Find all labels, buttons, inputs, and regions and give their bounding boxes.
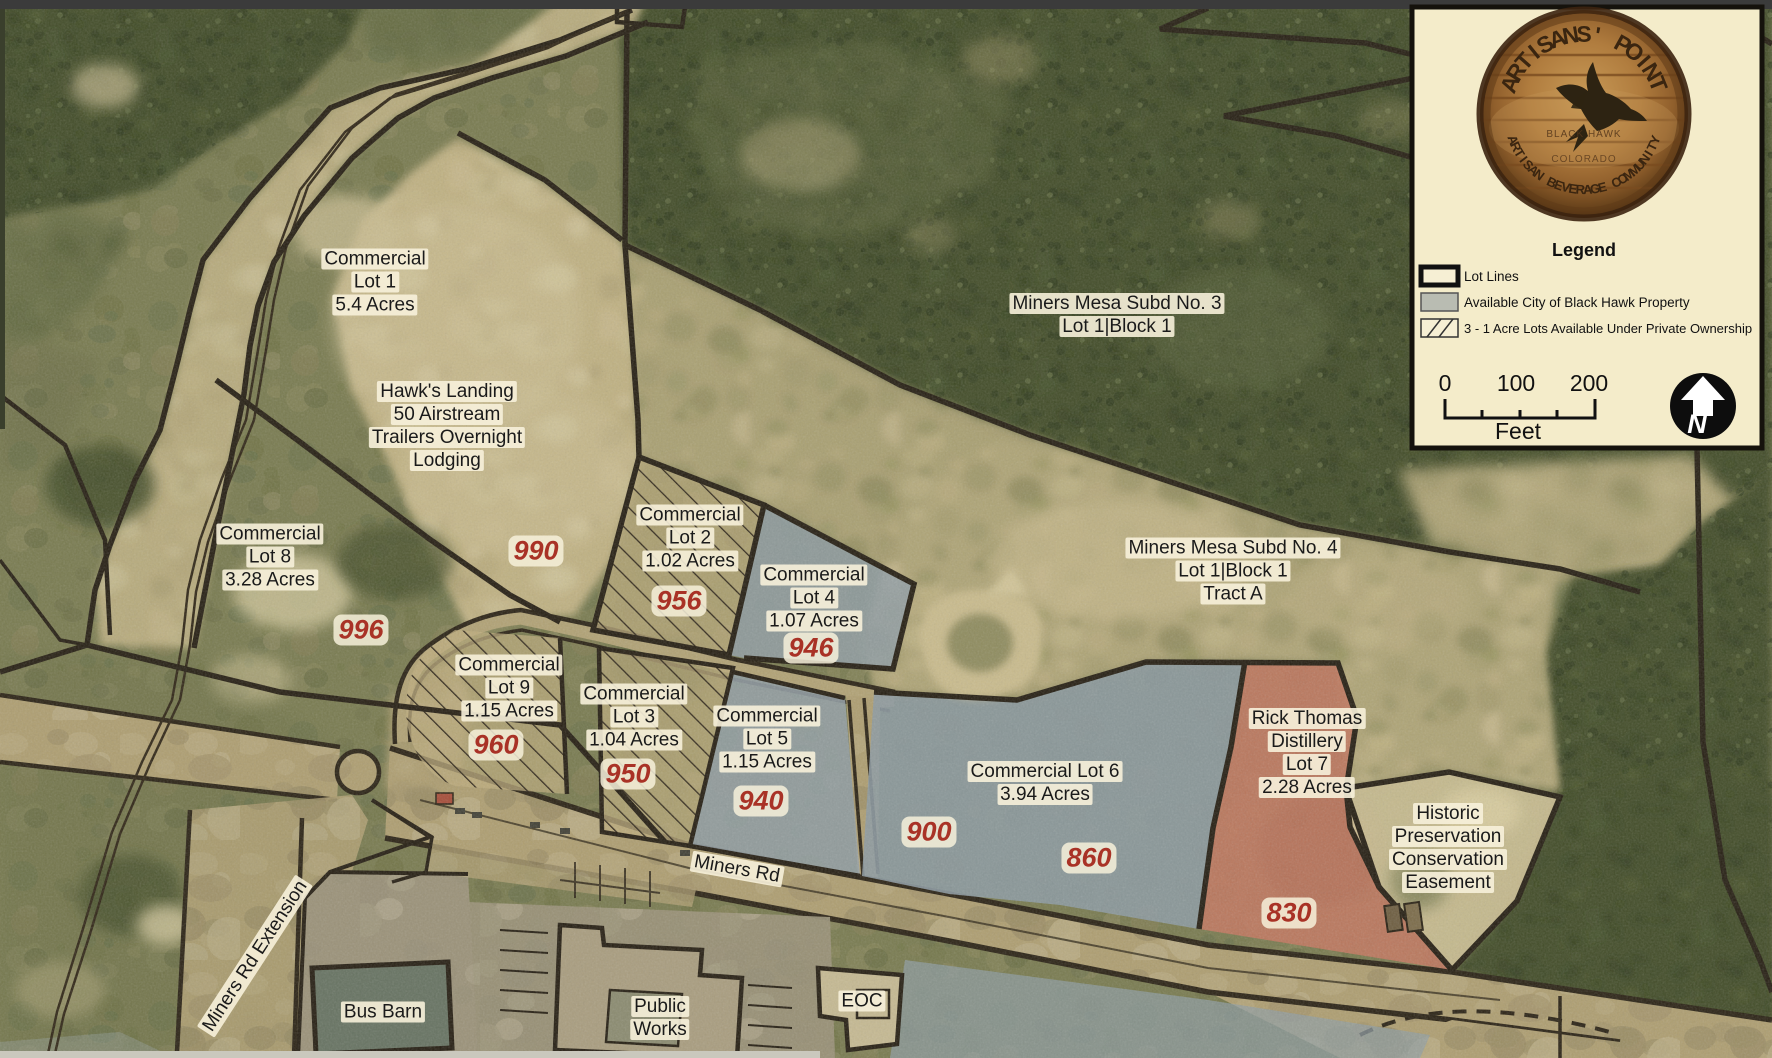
svg-text:S: S [1576, 21, 1591, 47]
svg-text:BLACK HAWK: BLACK HAWK [1546, 129, 1621, 140]
svg-text:0: 0 [1439, 370, 1452, 396]
svg-text:COLORADO: COLORADO [1551, 154, 1616, 165]
svg-text:200: 200 [1570, 370, 1608, 396]
svg-text:Legend: Legend [1552, 240, 1616, 260]
svg-text:Feet: Feet [1495, 418, 1542, 444]
svg-text:Lot Lines: Lot Lines [1464, 269, 1519, 284]
svg-text:N: N [1687, 409, 1707, 439]
svg-text:Available City of Black Hawk P: Available City of Black Hawk Property [1464, 295, 1690, 310]
svg-text:100: 100 [1497, 370, 1535, 396]
svg-text:3 - 1 Acre Lots Available Unde: 3 - 1 Acre Lots Available Under Private … [1464, 321, 1752, 336]
